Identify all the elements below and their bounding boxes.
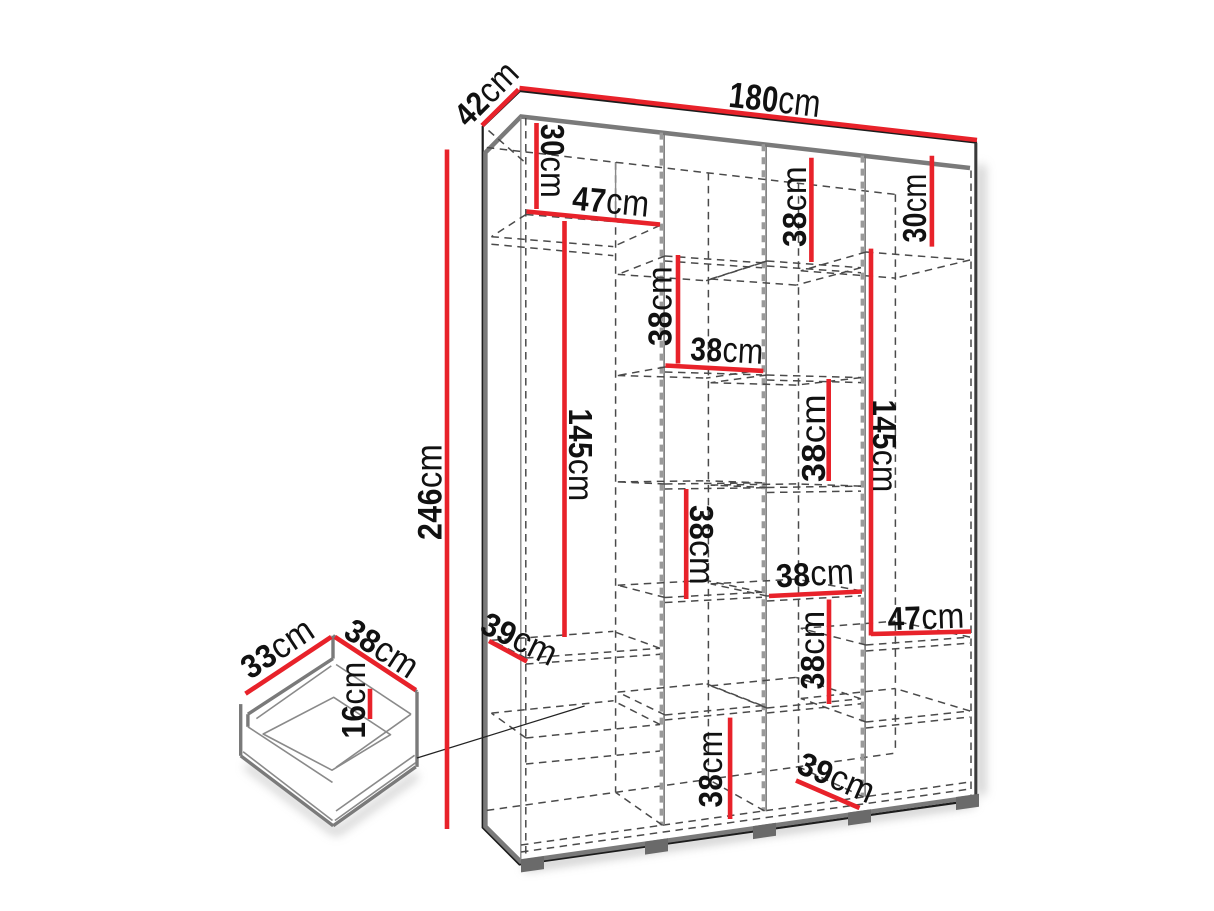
svg-text:38cm: 38cm <box>792 611 832 690</box>
svg-text:38cm: 38cm <box>774 166 814 247</box>
svg-text:38cm: 38cm <box>690 731 730 808</box>
svg-text:30cm: 30cm <box>533 124 573 198</box>
svg-text:16cm: 16cm <box>333 662 373 739</box>
svg-text:30cm: 30cm <box>894 174 934 243</box>
svg-text:38cm: 38cm <box>690 328 765 372</box>
svg-text:38cm: 38cm <box>775 551 855 595</box>
svg-text:145cm: 145cm <box>561 409 601 502</box>
svg-text:246cm: 246cm <box>408 444 449 540</box>
svg-text:38cm: 38cm <box>639 266 679 346</box>
svg-text:38cm: 38cm <box>682 505 722 585</box>
svg-text:47cm: 47cm <box>571 177 652 225</box>
svg-text:145cm: 145cm <box>865 400 905 493</box>
svg-text:38cm: 38cm <box>793 394 833 482</box>
svg-text:47cm: 47cm <box>887 596 965 639</box>
